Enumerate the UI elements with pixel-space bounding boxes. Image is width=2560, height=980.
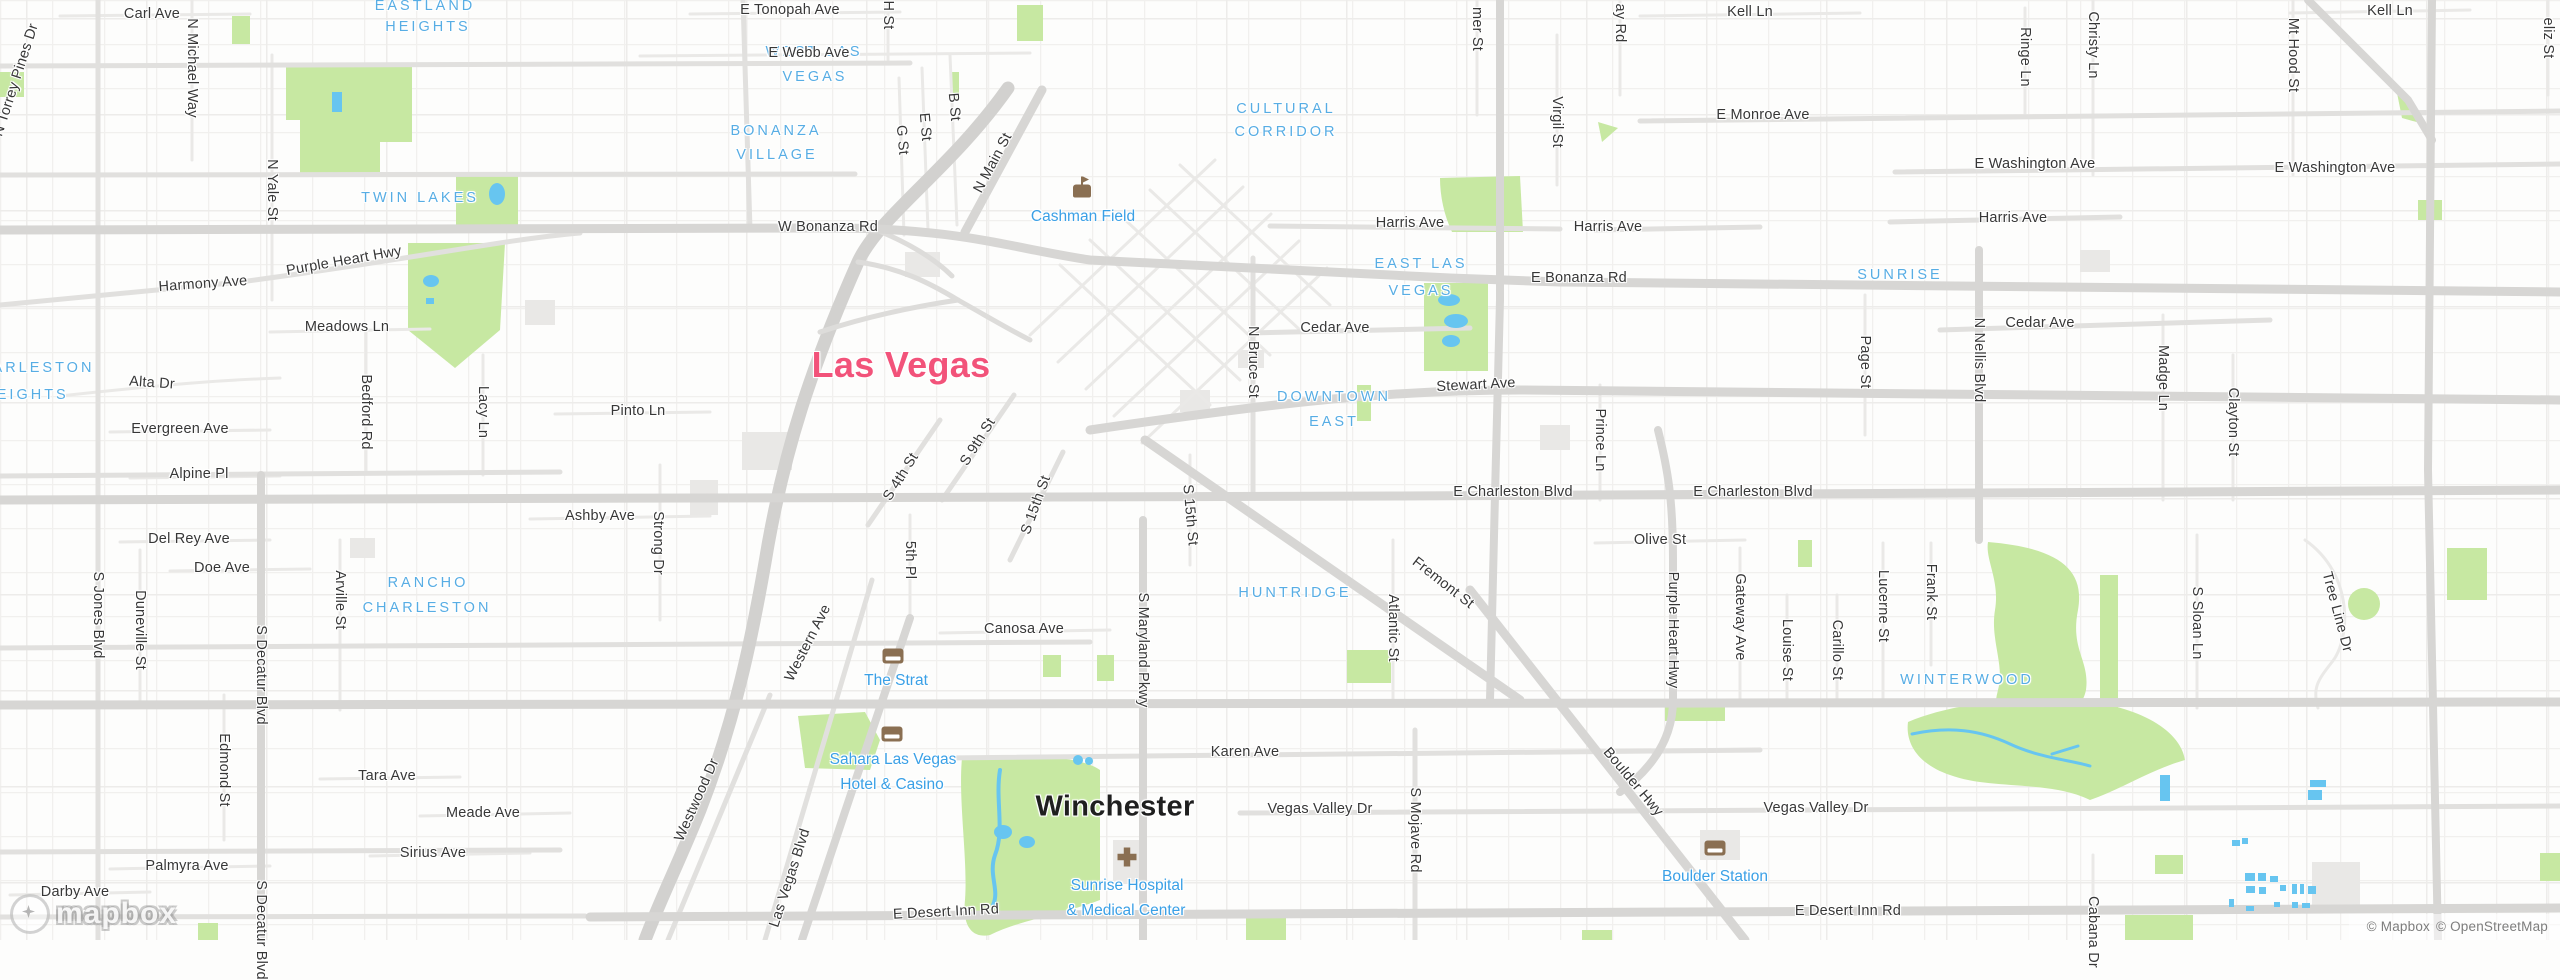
attribution-osm-link[interactable]: © OpenStreetMap (2436, 919, 2548, 934)
mapbox-logo[interactable]: mapbox (10, 894, 177, 934)
map-canvas[interactable]: Las VegasWinchesterEASTLANDHEIGHTSWEST L… (0, 0, 2560, 940)
mapbox-logo-icon (10, 894, 50, 934)
mapbox-logo-text: mapbox (56, 897, 177, 931)
map-base-layer (0, 0, 2560, 940)
attribution-mapbox-link[interactable]: © Mapbox (2367, 919, 2430, 934)
attribution-bar: © Mapbox© OpenStreetMap (2349, 914, 2560, 940)
